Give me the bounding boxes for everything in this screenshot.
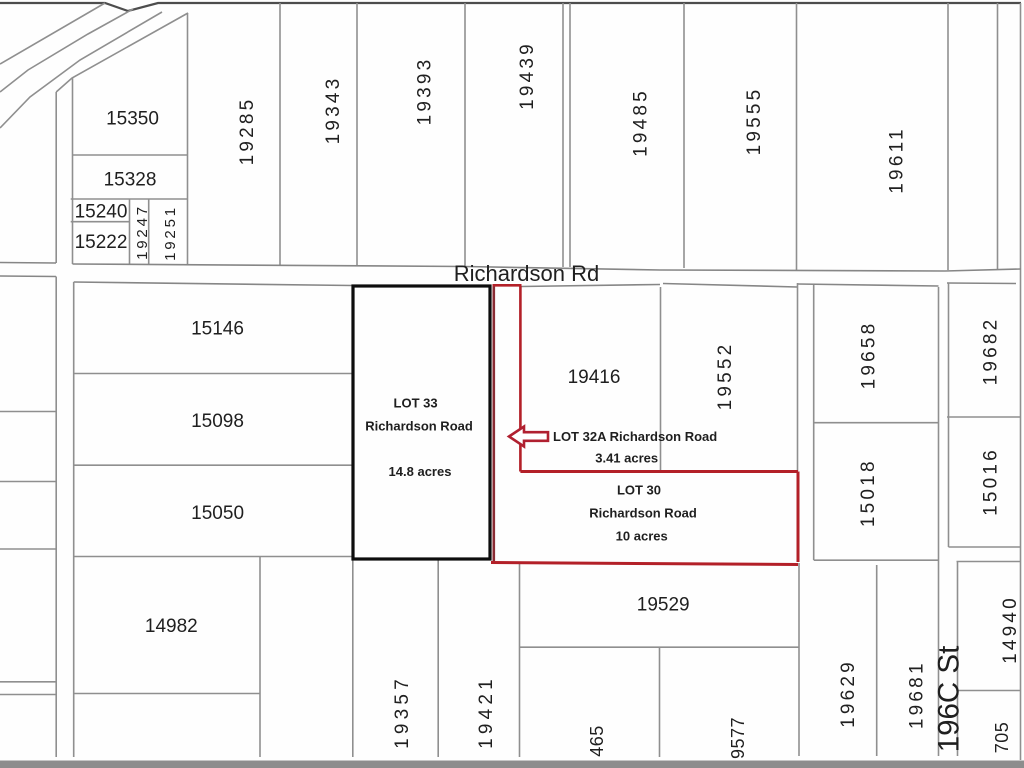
svg-text:19658: 19658 — [859, 321, 880, 390]
svg-text:19555: 19555 — [744, 87, 765, 156]
svg-text:196C St: 196C St — [933, 646, 966, 753]
svg-text:705: 705 — [992, 722, 1012, 754]
svg-text:LOT 30: LOT 30 — [617, 483, 661, 498]
svg-text:14982: 14982 — [145, 616, 198, 637]
svg-text:19439: 19439 — [517, 41, 538, 110]
svg-text:9577: 9577 — [728, 717, 748, 759]
svg-text:15016: 15016 — [981, 447, 1002, 516]
svg-text:15350: 15350 — [106, 109, 159, 130]
svg-text:465: 465 — [587, 725, 607, 757]
svg-text:19681: 19681 — [907, 660, 928, 729]
svg-text:19552: 19552 — [715, 342, 736, 411]
svg-text:19357: 19357 — [392, 675, 413, 749]
svg-text:15328: 15328 — [104, 170, 157, 191]
svg-text:19682: 19682 — [981, 317, 1002, 386]
svg-text:15050: 15050 — [191, 503, 244, 524]
svg-text:10 acres: 10 acres — [616, 529, 668, 544]
svg-text:19529: 19529 — [637, 595, 690, 616]
svg-text:Richardson Road: Richardson Road — [589, 506, 697, 521]
svg-text:19343: 19343 — [323, 76, 344, 145]
svg-text:Richardson Road: Richardson Road — [365, 419, 473, 434]
svg-text:15222: 15222 — [75, 232, 128, 253]
svg-text:19485: 19485 — [631, 88, 652, 157]
svg-text:19611: 19611 — [887, 126, 908, 193]
svg-text:15098: 15098 — [191, 411, 244, 432]
svg-text:19251: 19251 — [162, 205, 179, 261]
svg-text:19421: 19421 — [476, 675, 497, 749]
svg-text:LOT 32A Richardson Road: LOT 32A Richardson Road — [553, 429, 717, 444]
svg-text:19247: 19247 — [134, 204, 151, 260]
svg-text:19629: 19629 — [838, 659, 859, 728]
svg-text:LOT 33: LOT 33 — [394, 396, 438, 411]
svg-text:15146: 15146 — [191, 319, 244, 340]
svg-text:15018: 15018 — [858, 458, 879, 527]
svg-text:19285: 19285 — [237, 97, 258, 166]
svg-text:14.8 acres: 14.8 acres — [389, 464, 452, 479]
svg-text:3.41 acres: 3.41 acres — [595, 451, 658, 466]
svg-text:14940: 14940 — [1000, 595, 1021, 664]
svg-text:Richardson Rd: Richardson Rd — [454, 261, 600, 286]
svg-text:19416: 19416 — [568, 367, 621, 388]
svg-text:19393: 19393 — [415, 57, 436, 126]
svg-text:15240: 15240 — [75, 202, 128, 223]
